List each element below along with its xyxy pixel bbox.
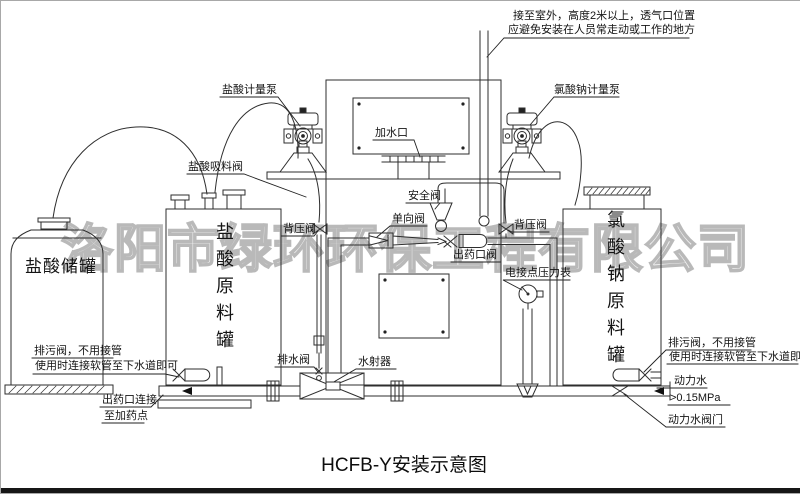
label-hcl-raw-tank: 盐酸原料罐	[211, 222, 237, 357]
label-power-water-pressure: >0.15MPa	[670, 392, 720, 405]
label-hcl-suction-valve: 盐酸吸料阀	[188, 161, 243, 174]
vent-note-line1: 接至室外，高度2米以上，透气口位置	[513, 10, 695, 23]
metering-pump-right	[499, 108, 545, 172]
label-water-ejector: 水射器	[358, 356, 391, 369]
blowdown-right-note-line2: 使用时连接软管至下水道即可	[669, 351, 800, 364]
flow-arrows	[182, 387, 664, 395]
label-contact-pressure-gauge: 电接点压力表	[505, 267, 571, 280]
label-hcl-storage-tank: 盐酸储罐	[25, 257, 97, 277]
label-check-valve: 单向阀	[392, 213, 425, 226]
dosing-cabinet-shape	[326, 80, 501, 385]
pump-shelves	[267, 172, 560, 179]
vent-note-line2: 应避免安装在人员常走动或工作的地方	[508, 24, 695, 37]
label-water-fill-port: 加水口	[375, 127, 408, 140]
label-hcl-metering-pump: 盐酸计量泵	[222, 84, 277, 97]
drain-valve-shape	[314, 235, 324, 380]
label-drain-valve: 排水阀	[277, 354, 310, 367]
blowdown-valve-left-shape	[173, 367, 222, 386]
label-safety-valve: 安全阀	[408, 190, 441, 203]
label-dosing-outlet-valve: 出药口阀	[453, 249, 497, 262]
outlet-note-line1: 出药口连接	[102, 394, 157, 407]
blowdown-left-note-line2: 使用时连接软管至下水道即可	[35, 360, 178, 373]
label-power-water-valve: 动力水阀门	[668, 414, 723, 427]
outlet-note-line2: 至加药点	[104, 410, 148, 423]
label-power-water: 动力水	[674, 375, 707, 388]
metering-pump-left	[280, 108, 326, 172]
suction-hoses	[53, 103, 581, 223]
label-back-pressure-valve-right: 背压阀	[514, 219, 547, 232]
blowdown-left-note-line1: 排污阀，不用接管	[34, 345, 122, 358]
label-naclo3-metering-pump: 氯酸钠计量泵	[554, 84, 620, 97]
label-back-pressure-valve-left: 背压阀	[283, 223, 316, 236]
diagram-page: 洛阳市绿环环保工程有限公司	[0, 0, 800, 494]
label-naclo3-raw-tank: 氯酸钠原料罐	[602, 210, 628, 372]
bottom-scan-bar	[1, 488, 800, 493]
diagram-title: HCFB-Y安装示意图	[304, 450, 504, 477]
pressure-gauge-shape	[517, 285, 543, 397]
safety-valve-shape	[430, 183, 504, 232]
blowdown-right-note-line1: 排污阀，不用接管	[668, 337, 756, 350]
water-ejector-shape	[300, 373, 364, 399]
vent-pipe	[479, 31, 489, 226]
